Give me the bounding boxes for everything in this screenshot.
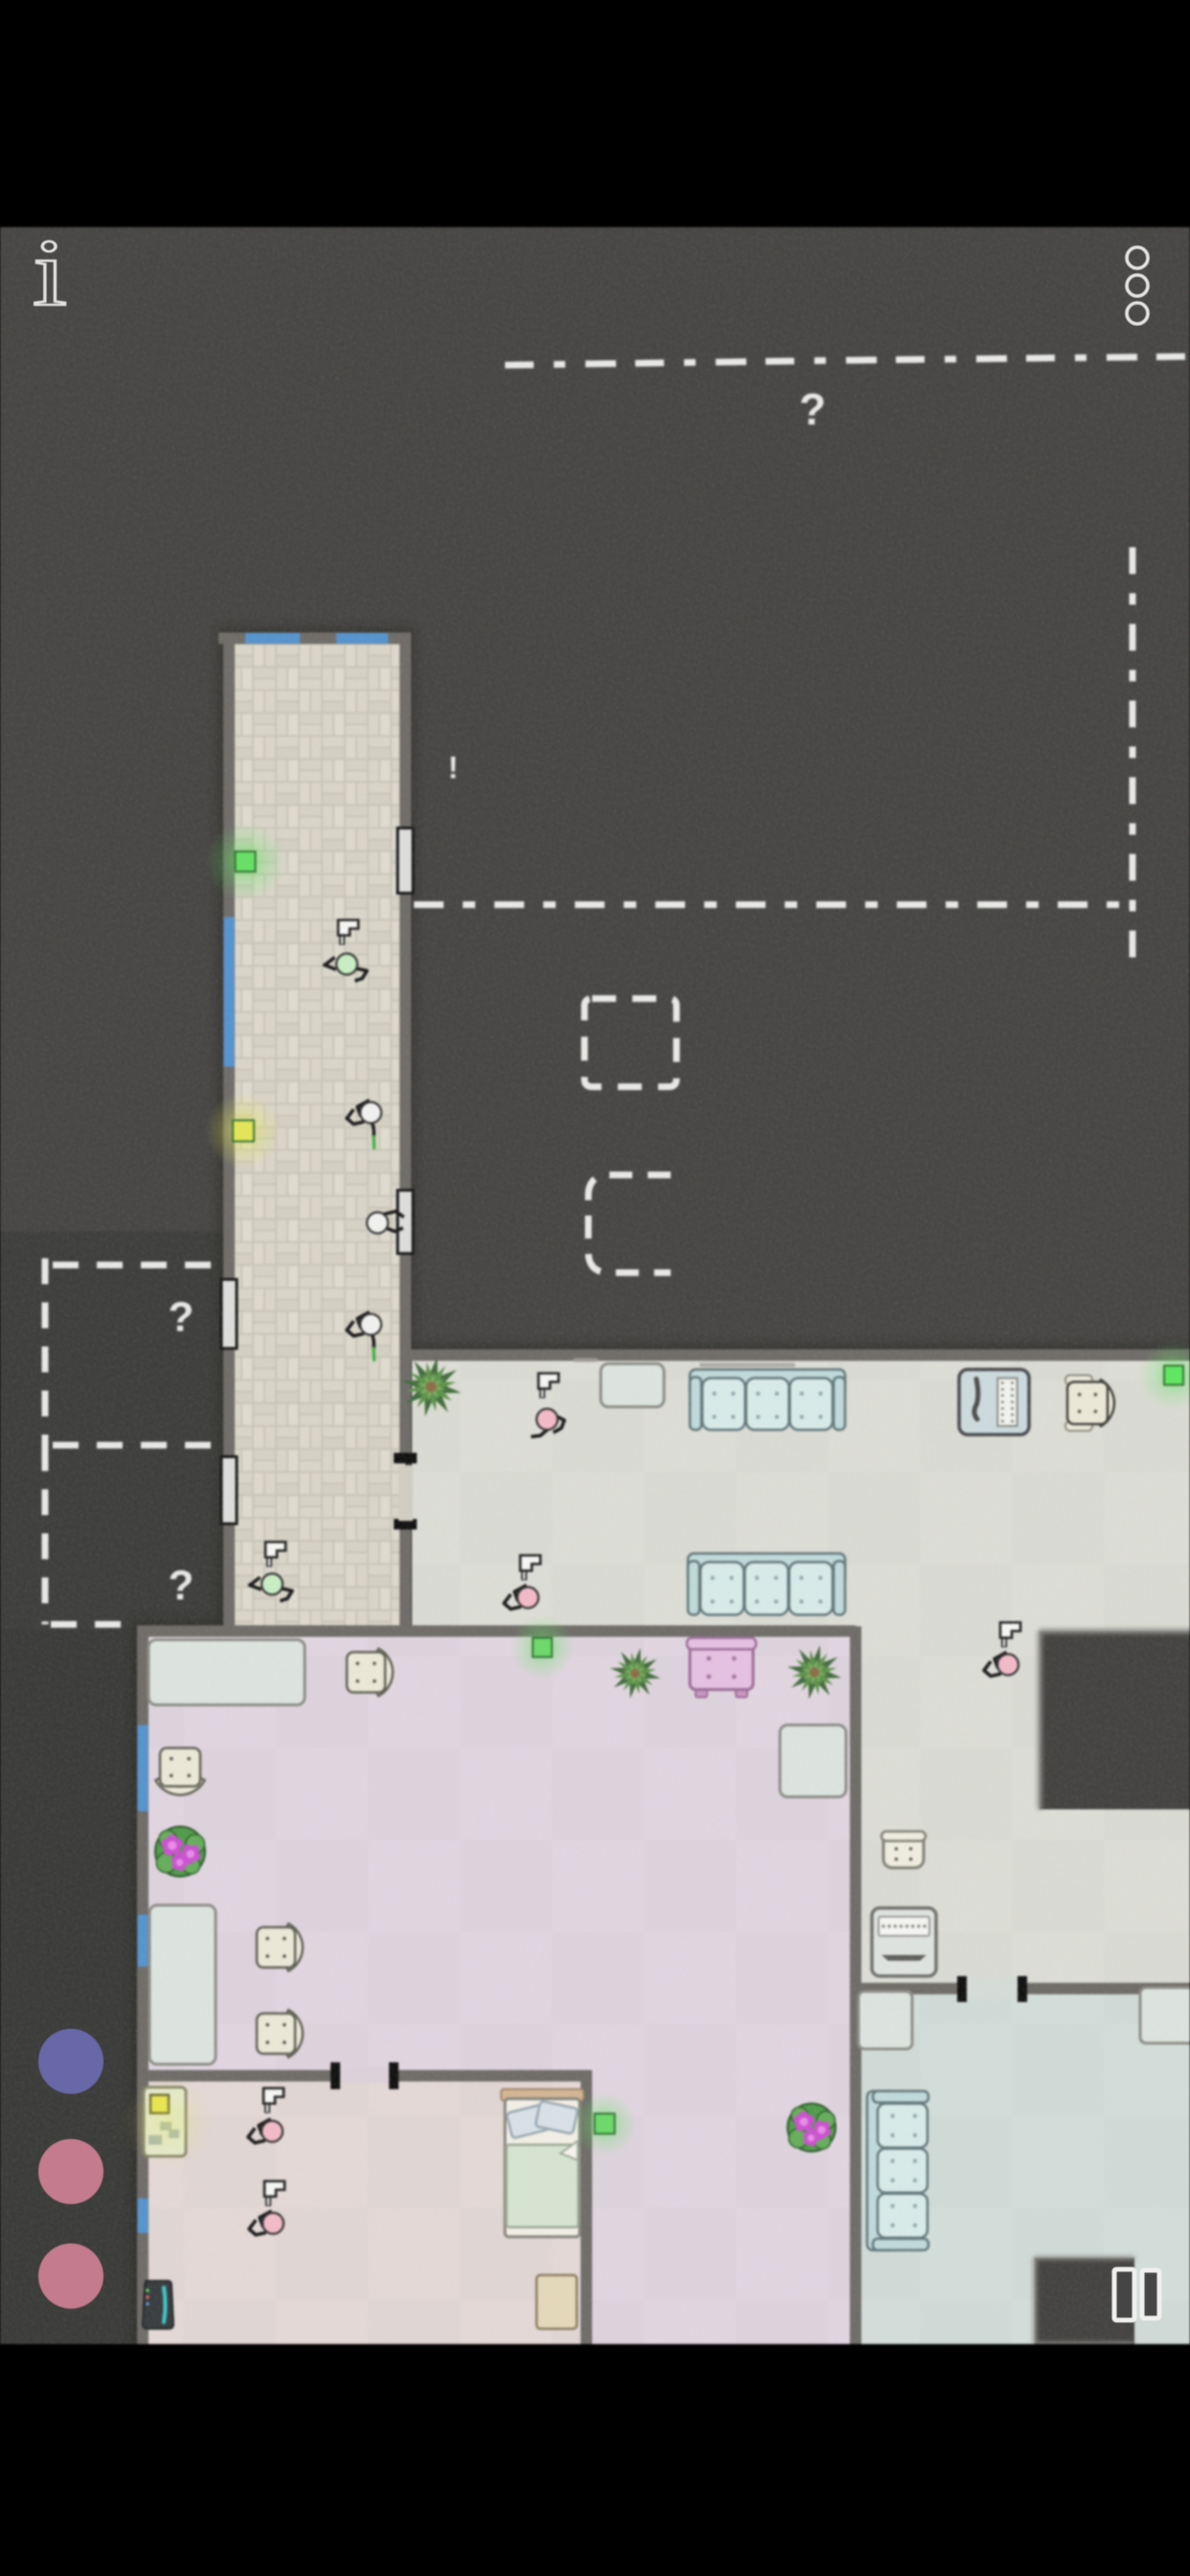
svg-text:i: i <box>33 220 67 326</box>
